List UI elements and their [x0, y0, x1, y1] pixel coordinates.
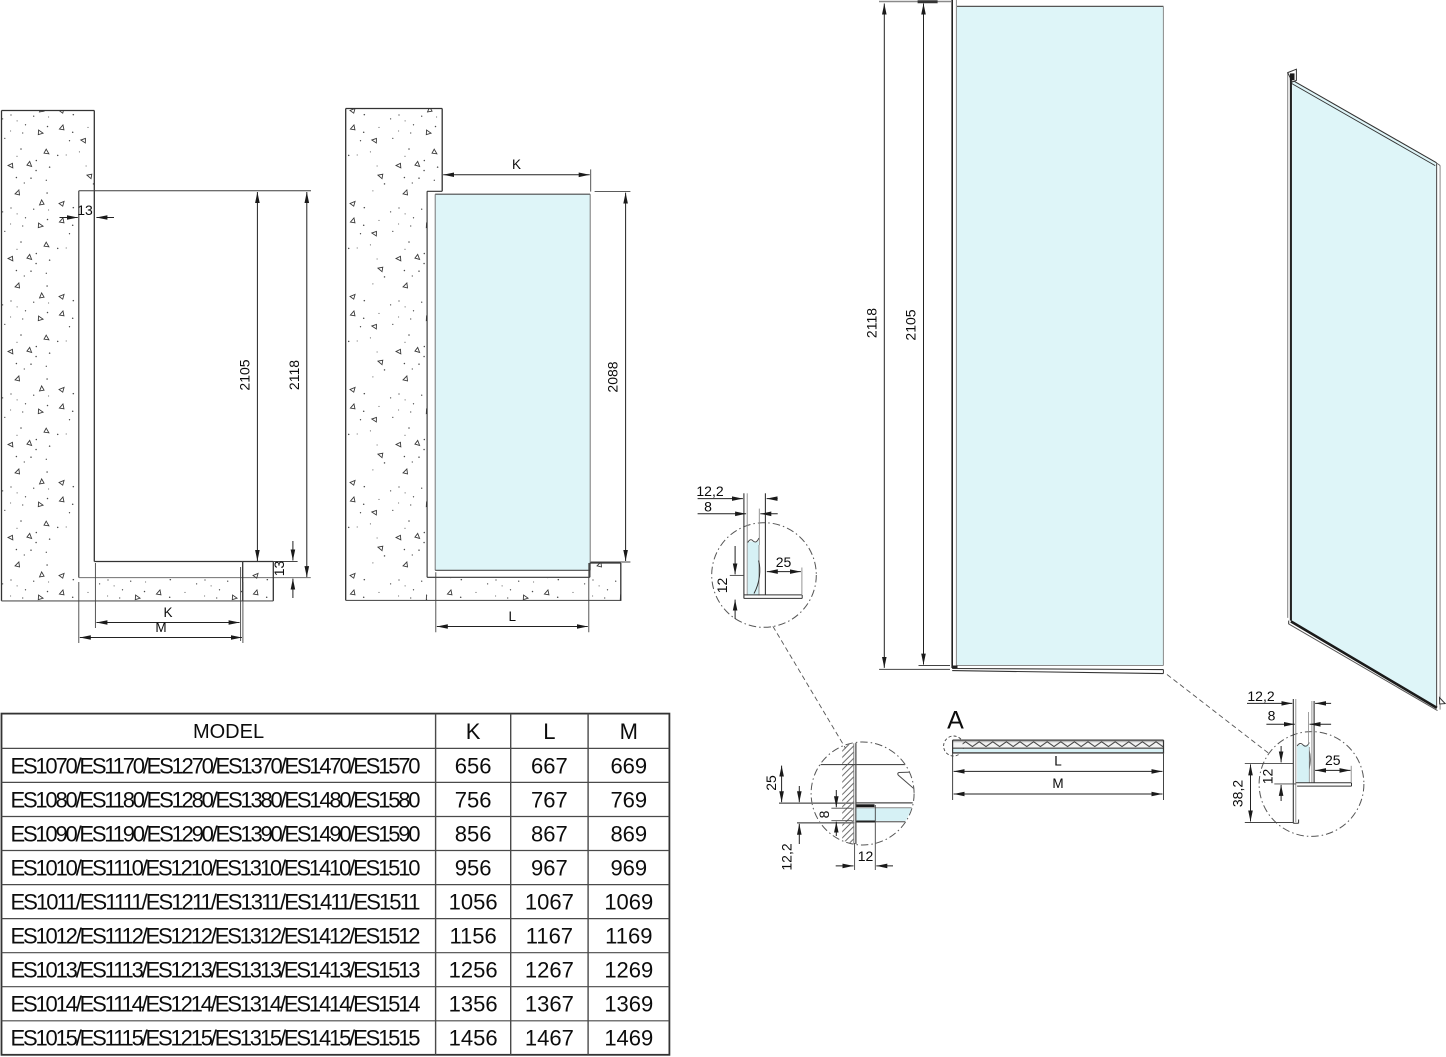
svg-text:L: L: [1054, 754, 1062, 769]
svg-text:K: K: [163, 605, 172, 620]
svg-text:2105: 2105: [237, 359, 253, 390]
svg-text:1167: 1167: [526, 924, 573, 949]
svg-text:K: K: [512, 157, 521, 172]
svg-text:M: M: [620, 719, 638, 744]
svg-text:M: M: [155, 620, 166, 635]
svg-text:1069: 1069: [604, 890, 653, 915]
svg-text:ES1080/ES1180/ES1280/ES1380/ES: ES1080/ES1180/ES1280/ES1380/ES1480/ES158…: [11, 787, 421, 812]
svg-text:2118: 2118: [286, 360, 302, 390]
svg-text:ES1090/ES1190/ES1290/ES1390/ES: ES1090/ES1190/ES1290/ES1390/ES1490/ES159…: [11, 821, 421, 846]
svg-text:38,2: 38,2: [1230, 780, 1246, 807]
svg-text:MODEL: MODEL: [193, 721, 264, 743]
svg-text:ES1014/ES1114/ES1214/ES1314/ES: ES1014/ES1114/ES1214/ES1314/ES1414/ES151…: [11, 992, 421, 1017]
svg-text:ES1010/ES1110/ES1210/ES1310/ES: ES1010/ES1110/ES1210/ES1310/ES1410/ES151…: [11, 856, 421, 881]
svg-text:769: 769: [610, 787, 647, 812]
svg-text:956: 956: [455, 856, 492, 881]
svg-text:1469: 1469: [604, 1026, 653, 1051]
svg-text:25: 25: [763, 775, 779, 791]
svg-text:1356: 1356: [449, 992, 498, 1017]
svg-text:656: 656: [455, 753, 492, 778]
svg-text:1269: 1269: [604, 958, 653, 983]
svg-text:12,2: 12,2: [779, 843, 795, 870]
svg-text:13: 13: [77, 202, 93, 218]
svg-text:12,2: 12,2: [696, 483, 723, 499]
svg-text:767: 767: [531, 787, 568, 812]
svg-text:K: K: [466, 719, 481, 744]
svg-text:867: 867: [531, 821, 568, 846]
svg-text:12: 12: [714, 578, 730, 594]
svg-text:1369: 1369: [604, 992, 653, 1017]
svg-text:2088: 2088: [605, 361, 621, 392]
svg-text:ES1011/ES1111/ES1211/ES1311/ES: ES1011/ES1111/ES1211/ES1311/ES1411/ES151…: [11, 890, 421, 915]
svg-text:L: L: [543, 719, 555, 744]
svg-text:2118: 2118: [864, 308, 880, 338]
svg-text:L: L: [509, 609, 517, 624]
svg-text:25: 25: [1325, 752, 1341, 768]
svg-text:1367: 1367: [525, 992, 574, 1017]
svg-text:ES1013/ES1113/ES1213/ES1313/ES: ES1013/ES1113/ES1213/ES1313/ES1413/ES151…: [11, 958, 421, 983]
svg-text:ES1015/ES1115/ES1215/ES1315/ES: ES1015/ES1115/ES1215/ES1315/ES1415/ES151…: [11, 1026, 421, 1051]
svg-text:756: 756: [455, 787, 492, 812]
svg-text:669: 669: [610, 753, 647, 778]
svg-text:25: 25: [776, 554, 792, 570]
svg-text:A: A: [947, 707, 964, 735]
svg-text:8: 8: [816, 810, 832, 818]
svg-text:12: 12: [858, 848, 874, 864]
svg-text:967: 967: [531, 856, 568, 881]
svg-text:ES1070/ES1170/ES1270/ES1370/ES: ES1070/ES1170/ES1270/ES1370/ES1470/ES157…: [11, 753, 421, 778]
svg-text:1156: 1156: [449, 924, 496, 949]
svg-text:12: 12: [1259, 769, 1275, 785]
svg-text:1056: 1056: [449, 890, 498, 915]
svg-text:2105: 2105: [903, 309, 919, 340]
svg-text:1456: 1456: [449, 1026, 498, 1051]
svg-text:8: 8: [1268, 708, 1276, 724]
svg-text:8: 8: [704, 499, 712, 515]
svg-text:ES1012/ES1112/ES1212/ES1312/ES: ES1012/ES1112/ES1212/ES1312/ES1412/ES151…: [11, 924, 421, 949]
svg-text:969: 969: [610, 856, 647, 881]
svg-text:856: 856: [455, 821, 492, 846]
svg-text:1467: 1467: [525, 1026, 574, 1051]
svg-text:667: 667: [531, 753, 568, 778]
svg-text:1169: 1169: [605, 924, 652, 949]
svg-text:13: 13: [271, 561, 287, 577]
svg-text:869: 869: [610, 821, 647, 846]
svg-text:12,2: 12,2: [1247, 688, 1274, 704]
svg-text:1267: 1267: [525, 958, 574, 983]
svg-text:M: M: [1052, 776, 1063, 791]
svg-text:1256: 1256: [449, 958, 498, 983]
svg-text:1067: 1067: [525, 890, 574, 915]
